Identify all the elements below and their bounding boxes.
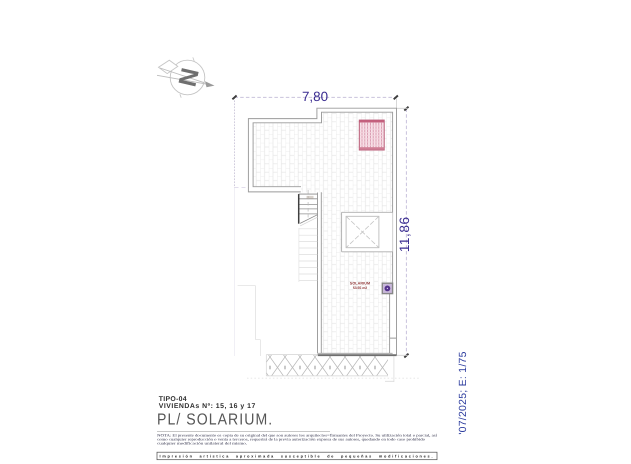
svg-text:cualquier modificación unilate: cualquier modificación unilateral del mi…	[157, 441, 247, 445]
svg-text:SOLARIUM: SOLARIUM	[350, 281, 370, 285]
svg-text:'07/2025; E: 1/75: '07/2025; E: 1/75	[458, 351, 469, 434]
svg-text:PL/ SOLARIUM.: PL/ SOLARIUM.	[157, 412, 273, 429]
svg-text:VIVIENDAs Nº: 15, 16 y 17: VIVIENDAs Nº: 15, 16 y 17	[159, 403, 256, 410]
svg-text:Impresión artística aproximada: Impresión artística aproximada susceptib…	[160, 455, 434, 459]
svg-text:TIPO-04: TIPO-04	[159, 396, 187, 403]
svg-text:53.55 m2: 53.55 m2	[353, 286, 367, 290]
svg-text:7,80: 7,80	[302, 89, 328, 104]
svg-text:11,86: 11,86	[397, 216, 412, 252]
